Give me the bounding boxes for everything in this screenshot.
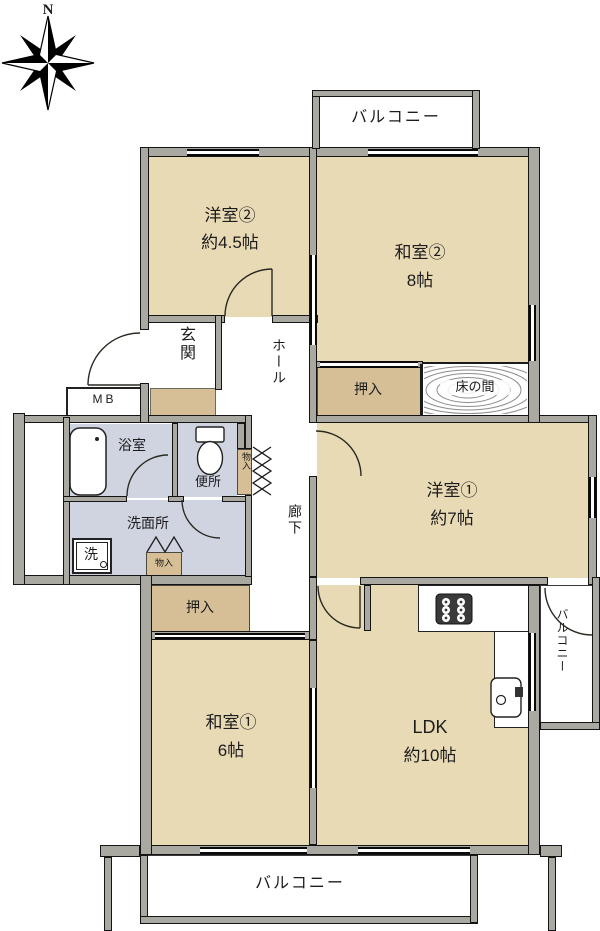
entrance-door-arc (88, 333, 140, 385)
wall (360, 577, 548, 585)
genkan-label: 玄関 (166, 326, 194, 384)
wall (237, 423, 245, 449)
wall (540, 845, 562, 857)
wall (215, 315, 222, 390)
monoire-2-label: 物入 (146, 558, 182, 568)
wall (13, 413, 25, 585)
wall (528, 147, 540, 423)
wall (168, 496, 184, 502)
wall (312, 90, 320, 149)
window (358, 847, 470, 854)
washroom-label: 洗面所 (112, 515, 184, 531)
tokonoma-top-line (423, 362, 528, 364)
window (589, 477, 596, 518)
yoshitsu1-size: 約7帖 (372, 509, 532, 529)
wall (472, 90, 480, 149)
wall (309, 476, 317, 577)
kitchen-counter (418, 585, 529, 632)
wall (592, 577, 600, 730)
fusuma-mark (320, 361, 418, 368)
wall (245, 415, 252, 449)
wall (245, 495, 252, 577)
bathroom-label: 浴室 (104, 437, 160, 453)
window (200, 847, 307, 854)
balcony-top-label: バルコニー (320, 109, 472, 127)
fusuma-mark (310, 688, 317, 788)
laundry-label: 洗 (74, 546, 108, 562)
balcony-slider (529, 633, 536, 711)
washitsu2-size: 8帖 (330, 271, 510, 291)
bathroom-area (68, 424, 172, 498)
fusuma-mark (310, 255, 317, 345)
washitsu1-name: 和室① (151, 713, 311, 733)
wall (140, 315, 225, 323)
oshiire-upper-label: 押入 (330, 381, 406, 397)
yoshitsu1-name: 洋室① (372, 481, 532, 501)
kitchen-stub-wall (364, 585, 371, 631)
meter-box-label: MB (66, 393, 143, 407)
hall-label: ホール (263, 338, 287, 410)
toilet-label: 便所 (180, 475, 236, 490)
monoire-1-label: 物入 (238, 452, 251, 494)
genkan-step (150, 388, 216, 417)
yoshitsu2-name: 洋室② (150, 206, 310, 226)
wall (528, 585, 540, 855)
balcony-bottom-label: バルコニー (220, 875, 380, 893)
wall (172, 423, 178, 500)
window (187, 149, 259, 156)
tokonoma-label: 床の間 (440, 380, 510, 395)
floor-plan: N バルコニー バルコニー バルコニー 洋室② 約4.5帖 和室② 8帖 洋室①… (0, 0, 600, 931)
wall (309, 415, 597, 423)
window (368, 149, 478, 156)
wall (104, 857, 112, 931)
window (529, 305, 536, 361)
balcony-right-label: バルコニー (546, 608, 568, 726)
washitsu2-name: 和室② (330, 243, 510, 263)
wall (100, 845, 140, 857)
wall (140, 855, 148, 923)
fusuma-mark (155, 633, 305, 639)
washitsu1-size: 6帖 (151, 741, 311, 761)
oshiire-lower-label: 押入 (160, 599, 240, 615)
wall (13, 575, 252, 585)
wall (63, 496, 127, 502)
wall (470, 855, 478, 923)
wall (13, 415, 252, 423)
compass-icon (2, 16, 94, 110)
wall (140, 916, 478, 924)
compass-north-label: N (38, 2, 58, 20)
wall (312, 90, 480, 97)
wall (140, 147, 149, 330)
ldk-size: 約10帖 (350, 746, 510, 766)
yoshitsu2-size: 約4.5帖 (150, 233, 310, 253)
tokonoma-left-line (420, 364, 423, 416)
ldk-name: LDK (350, 717, 510, 738)
wall (309, 577, 317, 640)
wall (548, 857, 556, 931)
corridor-label: 廊下 (279, 504, 303, 550)
